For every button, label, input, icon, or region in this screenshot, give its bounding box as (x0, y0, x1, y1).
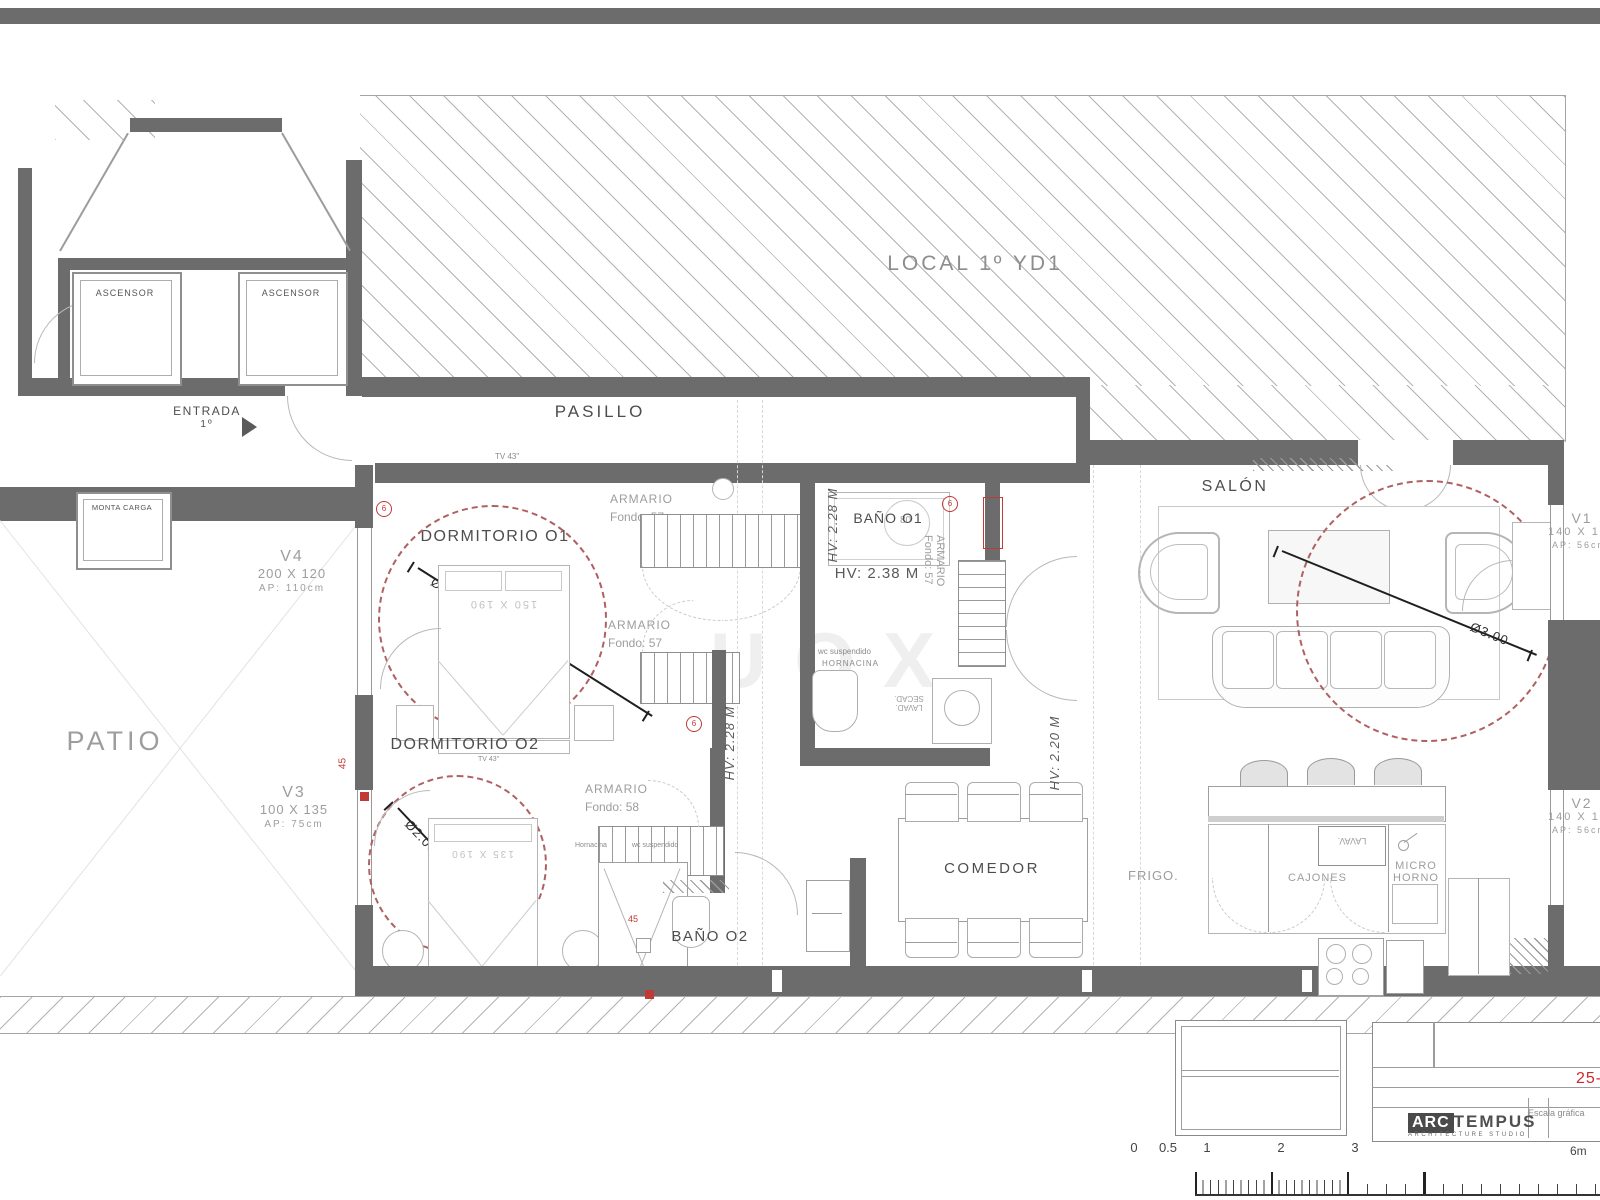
kitchen-cabinet-divider-1 (1268, 824, 1269, 932)
titleblock-2-line-2 (1372, 1087, 1600, 1088)
dorm1-dim-tick-b (642, 710, 650, 721)
scale-tick-1: 1 (1199, 1140, 1215, 1155)
window-v1-id: V1 (1564, 510, 1600, 526)
titleblock-2-cell-divider (1433, 1022, 1435, 1068)
left-wall-dim-45: 45 (338, 751, 349, 777)
red-mark-bottom (645, 990, 654, 999)
titleblock-1-divider-a (1181, 1070, 1339, 1071)
dorm2-hornacina-note: Hornacina (575, 842, 607, 849)
entrance-door-arc (287, 396, 352, 461)
armario1-swing-2 (722, 566, 801, 621)
dorm1-tv-note: TV 43" (478, 756, 499, 763)
dining-chair-6-back (1029, 942, 1081, 943)
burner-2 (1352, 944, 1372, 964)
kitchen-stool-2 (1307, 758, 1355, 785)
guide-dashed-3 (1093, 465, 1095, 965)
bath1-hv238: HV: 2.38 M (822, 565, 932, 582)
dorm2-pillow (434, 824, 532, 842)
kitchen-stool-3 (1374, 758, 1422, 785)
scale-tick-2: 2 (1273, 1140, 1289, 1155)
micro-label-line2: HORNO (1385, 872, 1447, 884)
pasillo-top-wall (362, 377, 1090, 397)
bath1-armario-vertical-line1: ARMARIO (934, 535, 946, 655)
scale-ruler-coarse (1348, 1184, 1600, 1194)
kitchen-sink (1318, 826, 1386, 866)
titleblock-1-inner (1181, 1026, 1341, 1130)
micro-label: MICRO HORNO (1385, 860, 1447, 884)
bottom-wall-opening-3 (1302, 970, 1312, 992)
dorm2-bed-size: 135 X 190 (436, 848, 528, 859)
bay-window-right (281, 133, 351, 252)
window-v3-sill: AP: 75cm (254, 819, 334, 830)
salon-entry-opening (1358, 440, 1453, 465)
microwave-box (1392, 884, 1438, 924)
window-v2-symbol (1550, 790, 1564, 905)
pillar-marker-2: 6 (942, 496, 958, 512)
comedor-label: COMEDOR (898, 860, 1086, 877)
bath2-niche-hatch (663, 880, 729, 893)
bath1-wc-note: wc suspendido (818, 647, 871, 656)
bath1-tall-closet (958, 560, 1006, 667)
burner-1 (1326, 944, 1346, 964)
bottom-wall-opening-2 (1082, 970, 1092, 992)
entrada-label: ENTRADA (165, 404, 249, 418)
bano2-label: BAÑO O2 (655, 928, 765, 945)
exterior-hatch-right-step (1090, 385, 1566, 442)
montacarga-wall-band (0, 487, 362, 521)
window-v4-symbol (357, 528, 372, 695)
dorm1-pillow-2 (505, 571, 562, 591)
shaft-top-wall (58, 258, 358, 270)
bath1-door-arc-1 (1006, 556, 1077, 627)
dorm2-door-arc (374, 790, 430, 846)
scale-tick-05: 0.5 (1153, 1140, 1183, 1155)
tv43-wall-note: TV 43" (495, 452, 519, 461)
bath1-hornacina-note: HORNACINA (822, 659, 879, 668)
dining-chair-5 (967, 918, 1021, 958)
elevator-2-label: ASCENSOR (246, 288, 336, 298)
towel-radiator (983, 497, 1003, 549)
local-label: LOCAL 1º YD1 (860, 252, 1090, 276)
armario3-depth: Fondo: 58 (585, 800, 639, 814)
kitchen-tall-divider (1478, 878, 1479, 974)
sofa-cushion-1 (1222, 631, 1274, 689)
top-page-wall (0, 8, 1600, 24)
burner-4 (1352, 968, 1369, 985)
scale-tick-0: 0 (1124, 1140, 1144, 1155)
bottom-wall-opening-1 (772, 970, 782, 992)
hall-stool (712, 478, 734, 500)
titleblock-2-line-1 (1372, 1067, 1600, 1068)
lobby-right-wall (346, 160, 362, 396)
kitchen-stool-1 (1240, 760, 1288, 787)
lobby-bottom-wall-right (350, 378, 362, 396)
burner-3 (1326, 968, 1343, 985)
lobby-left-wall (18, 168, 32, 396)
armario1-label: ARMARIO (610, 492, 673, 506)
scale-ruler-baseline (1195, 1194, 1600, 1196)
elevator-1-label: ASCENSOR (80, 288, 170, 298)
guide-dashed-4 (1140, 465, 1142, 965)
micro-label-line1: MICRO (1385, 860, 1447, 872)
entrada-arrow-icon (242, 417, 257, 437)
dorm1-nightstand-2 (574, 705, 614, 741)
window-v4-size: 200 X 120 (247, 566, 337, 581)
bath2-vanity (806, 880, 850, 952)
left-wall-seg1 (355, 465, 373, 528)
logo-arc-box: ARC (1408, 1113, 1454, 1133)
window-v4-id: V4 (262, 548, 322, 566)
logo-tempus-text: TEMPUS (1454, 1112, 1537, 1131)
patio-label: PATIO (55, 726, 175, 757)
dorm1-bed-size: 150 X 190 (448, 598, 558, 610)
oven (1386, 940, 1424, 994)
bath2-door-arc (735, 852, 798, 915)
bay-window-left (59, 133, 129, 252)
rooms-top-wall (375, 463, 1090, 483)
right-wall-seg1 (1548, 440, 1564, 505)
logo-subtitle: ARCHITECTURE STUDIO (1408, 1132, 1527, 1138)
window-v2-size: 140 X 170 (1548, 811, 1600, 823)
montacarga-label: MONTA CARGA (78, 503, 166, 512)
lobby-bay-top-wall (130, 118, 282, 132)
window-v2-sill: AP: 56cm (1552, 825, 1600, 835)
titleblock-2-vline-2 (1548, 1098, 1549, 1138)
bano1-label: BAÑO O1 (828, 510, 948, 526)
floor-plan-canvas: LOCAL 1º YD1 L UOX ASCENSOR ASCENSOR ENT… (0, 0, 1600, 1200)
bath2-vanity-handle (812, 913, 842, 914)
bath2-right-wall (850, 858, 866, 978)
bath1-washer-label-line2: SECAD. (884, 694, 934, 703)
scale-ruler-major-4 (1423, 1172, 1426, 1194)
dorm2-wc-note: wc suspendido (632, 842, 678, 849)
dorm1-bed (438, 565, 570, 739)
dining-chair-1 (905, 782, 959, 822)
window-v3-size: 100 X 135 (249, 802, 339, 817)
armchair-left-seat (1150, 544, 1208, 600)
red-mark-left-wall (360, 792, 369, 801)
armario2-swing (642, 600, 693, 651)
scale-ruler-major-3 (1347, 1172, 1349, 1194)
dormitorio2-label: DORMITORIO O2 (375, 736, 555, 754)
kitchen-island-edge (1208, 816, 1444, 822)
scale-max-label: 6m (1570, 1144, 1587, 1158)
dorm1-pillow-1 (445, 571, 502, 591)
armario3-swing (648, 780, 699, 827)
dining-chair-2 (967, 782, 1021, 822)
pasillo-label: PASILLO (545, 402, 655, 422)
dining-chair-1-back (905, 794, 957, 795)
window-v1-symbol (1550, 505, 1564, 620)
bath1-door-arc-2 (1006, 630, 1077, 701)
bath1-armario-vertical-line2: Fondo: 57 (922, 535, 934, 655)
left-wall-seg2 (355, 695, 373, 790)
dining-chair-4 (905, 918, 959, 958)
bath2-shower-dim: 45 (628, 914, 638, 924)
salon-label: SALÓN (1185, 478, 1285, 496)
frigo-label: FRIGO. (1128, 868, 1179, 883)
dining-chair-5-back (967, 942, 1019, 943)
bath1-washer-label-line1: LAVAD. (884, 703, 934, 712)
right-wall-seg2 (1548, 620, 1600, 790)
bath1-washer-drum (944, 690, 980, 726)
arctempus-logo: ARCTEMPUS (1408, 1112, 1537, 1134)
exterior-hatch-top (360, 95, 1566, 386)
right-wall-seg3 (1548, 905, 1564, 996)
armario1-closet (640, 514, 804, 568)
bath2-drain (636, 938, 651, 953)
scale-ruler-major-1 (1195, 1172, 1197, 1194)
bath1-bottom-wall (800, 748, 990, 766)
pillar-marker-3: 6 (686, 716, 702, 732)
kitchen-tall-units (1448, 878, 1510, 976)
titleblock-1-divider-b (1181, 1076, 1339, 1077)
comedor-hv220: HV: 2.20 M (1047, 698, 1063, 808)
pillar-marker-1: 6 (376, 501, 392, 517)
pasillo-step-wall (1076, 377, 1090, 465)
dining-chair-2-back (967, 794, 1019, 795)
scale-ruler-major-2 (1271, 1172, 1273, 1194)
bath1-hv228: HV: 2.28 M (825, 470, 841, 580)
dining-chair-6 (1029, 918, 1083, 958)
window-v1-size: 140 X 170 (1548, 526, 1600, 538)
bath1-armario-vertical: ARMARIO Fondo: 57 (922, 535, 946, 655)
bath1-toilet (812, 670, 858, 732)
armario3-label: ARMARIO (585, 782, 648, 796)
sheet-number: 25- (1576, 1070, 1600, 1088)
kitchen-sink-label: LAVAV. (1330, 836, 1374, 846)
bath1-washer-label: LAVAD. SECAD. (884, 694, 934, 712)
window-v1-sill: AP: 56cm (1552, 540, 1600, 550)
scale-tick-3: 3 (1347, 1140, 1363, 1155)
window-v4-sill: AP: 110cm (252, 583, 332, 594)
exterior-hatch-bottom-band (0, 996, 1600, 1034)
entrada-floor-label: 1º (165, 419, 249, 430)
hall-hv228: HV: 2.28 M (722, 688, 738, 798)
window-v3-id: V3 (264, 784, 324, 802)
dining-chair-4-back (905, 942, 957, 943)
window-v2-id: V2 (1564, 795, 1600, 811)
